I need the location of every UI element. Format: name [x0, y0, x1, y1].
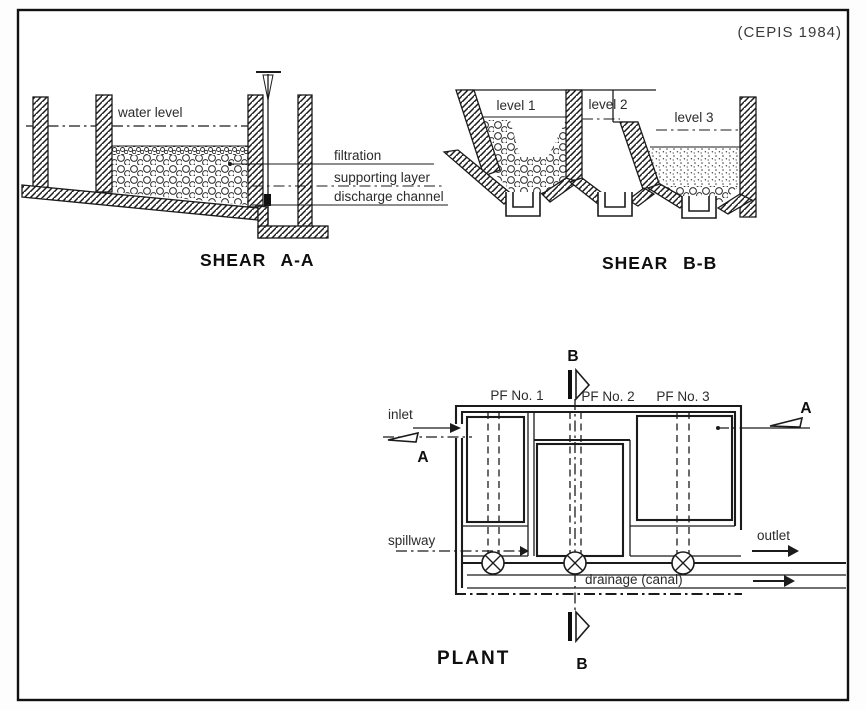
valve-icon-2: [564, 552, 586, 574]
outlet-label: outlet: [757, 528, 790, 543]
filtration-layer-gravel: [112, 146, 248, 155]
pf3-label: PF No. 3: [656, 389, 709, 404]
pf1-label: PF No. 1: [490, 388, 543, 403]
section-b-letter-bottom: B: [576, 656, 587, 673]
pf2-label: PF No. 2: [581, 389, 634, 404]
chamber3-sand: [648, 148, 740, 190]
inlet-label: inlet: [388, 407, 413, 422]
shear-bb-title: SHEAR B-B: [602, 253, 717, 273]
section-a-letter-right: A: [800, 400, 811, 417]
supporting-layer-label: supporting layer: [334, 170, 431, 185]
channel-bottom: [258, 226, 328, 238]
rod-anchor: [264, 194, 271, 206]
figure-page: (CEPIS 1984) water level filtration supp…: [0, 0, 866, 710]
notch3-inner: [689, 196, 709, 211]
outer-right-wall: [298, 95, 312, 228]
notch1-inner: [513, 192, 533, 207]
basin-right-wall: [248, 95, 263, 207]
valve-icon-1: [482, 552, 504, 574]
discharge-channel-label: discharge channel: [334, 189, 444, 204]
shear-aa-title: SHEAR A-A: [200, 250, 315, 270]
level1-label: level 1: [496, 98, 535, 113]
basin-left-wall: [96, 95, 112, 192]
bb-middle-wall-1: [566, 90, 582, 180]
diagram-canvas: (CEPIS 1984) water level filtration supp…: [0, 0, 866, 710]
level3-label: level 3: [674, 110, 713, 125]
valve-icon-3: [672, 552, 694, 574]
water-level-label: water level: [117, 105, 183, 120]
drainage-label: drainage (canal): [585, 572, 683, 587]
level2-label: level 2: [588, 97, 627, 112]
section-a-letter-left: A: [417, 449, 428, 466]
filtration-label: filtration: [334, 148, 381, 163]
section-b-letter-top: B: [567, 348, 578, 365]
left-free-wall: [33, 97, 48, 188]
citation-text: (CEPIS 1984): [737, 24, 842, 41]
spillway-label: spillway: [388, 533, 436, 548]
notch2-inner: [605, 192, 625, 207]
plant-title: PLANT: [437, 648, 510, 669]
